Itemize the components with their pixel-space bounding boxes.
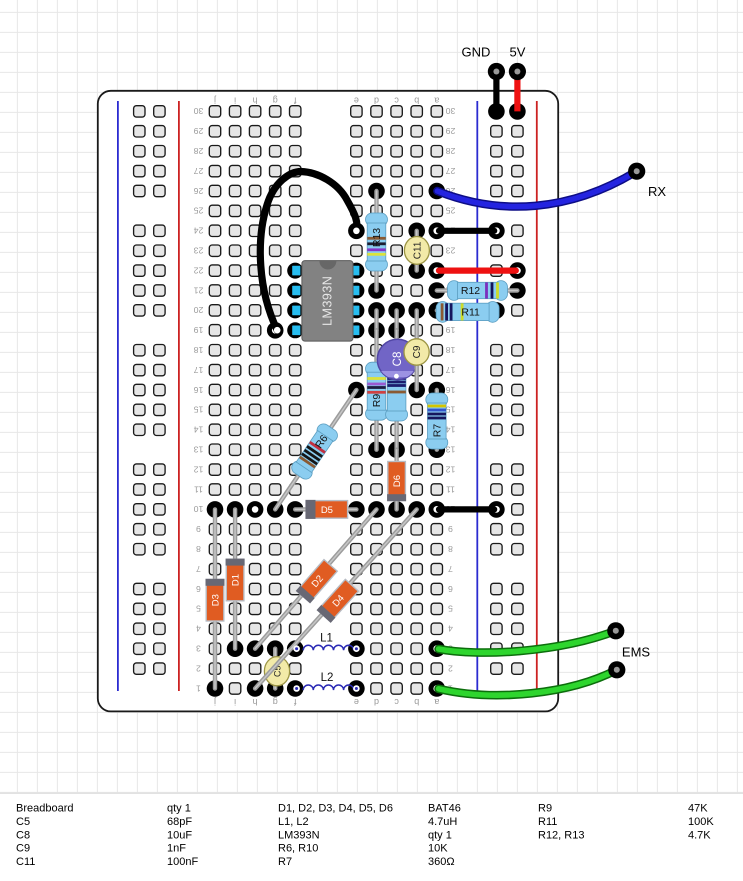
svg-text:25: 25 bbox=[194, 206, 204, 216]
svg-text:2: 2 bbox=[196, 663, 201, 673]
svg-text:D6: D6 bbox=[392, 475, 403, 487]
svg-text:21: 21 bbox=[194, 285, 204, 295]
svg-text:10uF: 10uF bbox=[167, 829, 192, 841]
svg-text:R11: R11 bbox=[461, 307, 480, 319]
svg-text:10K: 10K bbox=[428, 843, 448, 855]
svg-text:D1: D1 bbox=[231, 574, 242, 586]
svg-text:i: i bbox=[234, 95, 236, 105]
svg-text:b: b bbox=[414, 95, 419, 105]
svg-text:D5: D5 bbox=[321, 505, 333, 516]
svg-text:R9: R9 bbox=[538, 803, 552, 815]
svg-text:23: 23 bbox=[446, 246, 456, 256]
svg-text:4: 4 bbox=[196, 624, 201, 634]
svg-text:C9: C9 bbox=[16, 843, 30, 855]
svg-text:c: c bbox=[394, 697, 399, 707]
svg-text:68pF: 68pF bbox=[167, 816, 192, 828]
svg-text:R6, R10: R6, R10 bbox=[278, 843, 318, 855]
svg-text:5V: 5V bbox=[510, 45, 526, 60]
svg-text:b: b bbox=[414, 697, 419, 707]
svg-text:26: 26 bbox=[194, 186, 204, 196]
svg-text:j: j bbox=[214, 697, 217, 707]
svg-text:360Ω: 360Ω bbox=[428, 856, 455, 868]
svg-text:12: 12 bbox=[194, 464, 204, 474]
svg-text:5: 5 bbox=[196, 604, 201, 614]
svg-text:R12: R12 bbox=[461, 285, 480, 297]
svg-text:30: 30 bbox=[194, 106, 204, 116]
svg-text:16: 16 bbox=[446, 385, 456, 395]
svg-text:L2: L2 bbox=[321, 672, 334, 684]
svg-text:g: g bbox=[273, 697, 278, 707]
svg-text:R9: R9 bbox=[371, 394, 383, 408]
svg-text:4: 4 bbox=[448, 624, 453, 634]
svg-text:4.7uH: 4.7uH bbox=[428, 816, 457, 828]
svg-text:6: 6 bbox=[448, 584, 453, 594]
svg-text:11: 11 bbox=[446, 484, 455, 494]
svg-text:qty 1: qty 1 bbox=[428, 829, 452, 841]
svg-text:30: 30 bbox=[446, 106, 456, 116]
svg-text:g: g bbox=[273, 95, 278, 105]
svg-text:2: 2 bbox=[448, 663, 453, 673]
svg-text:R12, R13: R12, R13 bbox=[538, 829, 584, 841]
svg-text:28: 28 bbox=[194, 146, 204, 156]
svg-text:19: 19 bbox=[194, 325, 204, 335]
svg-text:Breadboard: Breadboard bbox=[16, 803, 74, 815]
svg-text:e: e bbox=[354, 95, 359, 105]
svg-text:3: 3 bbox=[196, 644, 201, 654]
svg-text:i: i bbox=[234, 697, 236, 707]
svg-text:C8: C8 bbox=[16, 829, 30, 841]
svg-text:C9: C9 bbox=[412, 345, 423, 358]
svg-text:16: 16 bbox=[194, 385, 204, 395]
svg-text:28: 28 bbox=[446, 146, 456, 156]
svg-text:R7: R7 bbox=[431, 424, 443, 438]
svg-text:8: 8 bbox=[448, 544, 453, 554]
svg-text:c: c bbox=[394, 95, 399, 105]
svg-text:47K: 47K bbox=[688, 803, 708, 815]
svg-text:15: 15 bbox=[194, 405, 204, 415]
svg-text:29: 29 bbox=[194, 126, 204, 136]
svg-text:14: 14 bbox=[446, 425, 456, 435]
svg-text:23: 23 bbox=[194, 246, 204, 256]
svg-text:d: d bbox=[374, 697, 379, 707]
svg-text:j: j bbox=[214, 95, 217, 105]
svg-text:19: 19 bbox=[446, 325, 456, 335]
svg-text:GND: GND bbox=[462, 45, 491, 60]
svg-text:L1, L2: L1, L2 bbox=[278, 816, 309, 828]
svg-text:10: 10 bbox=[194, 504, 204, 514]
svg-text:D1, D2, D3, D4, D5, D6: D1, D2, D3, D4, D5, D6 bbox=[278, 803, 393, 815]
svg-text:R7: R7 bbox=[278, 856, 292, 868]
svg-text:9: 9 bbox=[448, 524, 453, 534]
svg-text:9: 9 bbox=[196, 524, 201, 534]
svg-text:LM393N: LM393N bbox=[321, 276, 335, 326]
svg-text:15: 15 bbox=[446, 405, 456, 415]
svg-text:h: h bbox=[253, 95, 258, 105]
svg-text:C5: C5 bbox=[16, 816, 30, 828]
svg-text:20: 20 bbox=[194, 305, 204, 315]
svg-text:13: 13 bbox=[194, 445, 204, 455]
svg-text:LM393N: LM393N bbox=[278, 829, 320, 841]
svg-text:18: 18 bbox=[194, 345, 204, 355]
svg-text:27: 27 bbox=[446, 166, 456, 176]
svg-text:4.7K: 4.7K bbox=[688, 829, 711, 841]
svg-text:29: 29 bbox=[446, 126, 456, 136]
svg-text:e: e bbox=[354, 697, 359, 707]
svg-text:22: 22 bbox=[194, 265, 204, 275]
svg-text:qty 1: qty 1 bbox=[167, 803, 191, 815]
svg-text:C11: C11 bbox=[412, 241, 423, 259]
svg-text:17: 17 bbox=[446, 365, 456, 375]
svg-text:L1: L1 bbox=[320, 633, 333, 645]
svg-text:d: d bbox=[374, 95, 379, 105]
svg-text:D3: D3 bbox=[210, 594, 221, 606]
svg-text:14: 14 bbox=[194, 425, 204, 435]
svg-text:100K: 100K bbox=[688, 816, 714, 828]
svg-text:6: 6 bbox=[196, 584, 201, 594]
svg-text:24: 24 bbox=[194, 226, 204, 236]
svg-text:R13: R13 bbox=[371, 228, 383, 247]
svg-text:a: a bbox=[434, 95, 439, 105]
svg-text:C11: C11 bbox=[16, 856, 35, 868]
svg-text:a: a bbox=[434, 697, 439, 707]
svg-text:h: h bbox=[253, 697, 258, 707]
svg-text:8: 8 bbox=[196, 544, 201, 554]
svg-text:25: 25 bbox=[446, 206, 456, 216]
svg-text:RX: RX bbox=[648, 184, 666, 199]
svg-text:7: 7 bbox=[196, 564, 201, 574]
svg-text:EMS: EMS bbox=[622, 645, 651, 660]
svg-text:18: 18 bbox=[446, 345, 456, 355]
svg-text:7: 7 bbox=[448, 564, 453, 574]
svg-text:12: 12 bbox=[446, 464, 456, 474]
svg-text:BAT46: BAT46 bbox=[428, 803, 461, 815]
svg-text:R11: R11 bbox=[538, 816, 557, 828]
svg-text:1: 1 bbox=[196, 683, 201, 693]
svg-text:17: 17 bbox=[194, 365, 204, 375]
svg-text:27: 27 bbox=[194, 166, 204, 176]
svg-text:100nF: 100nF bbox=[167, 856, 198, 868]
svg-text:1nF: 1nF bbox=[167, 843, 186, 855]
svg-text:11: 11 bbox=[194, 484, 203, 494]
svg-text:C8: C8 bbox=[392, 352, 404, 367]
svg-text:5: 5 bbox=[448, 604, 453, 614]
